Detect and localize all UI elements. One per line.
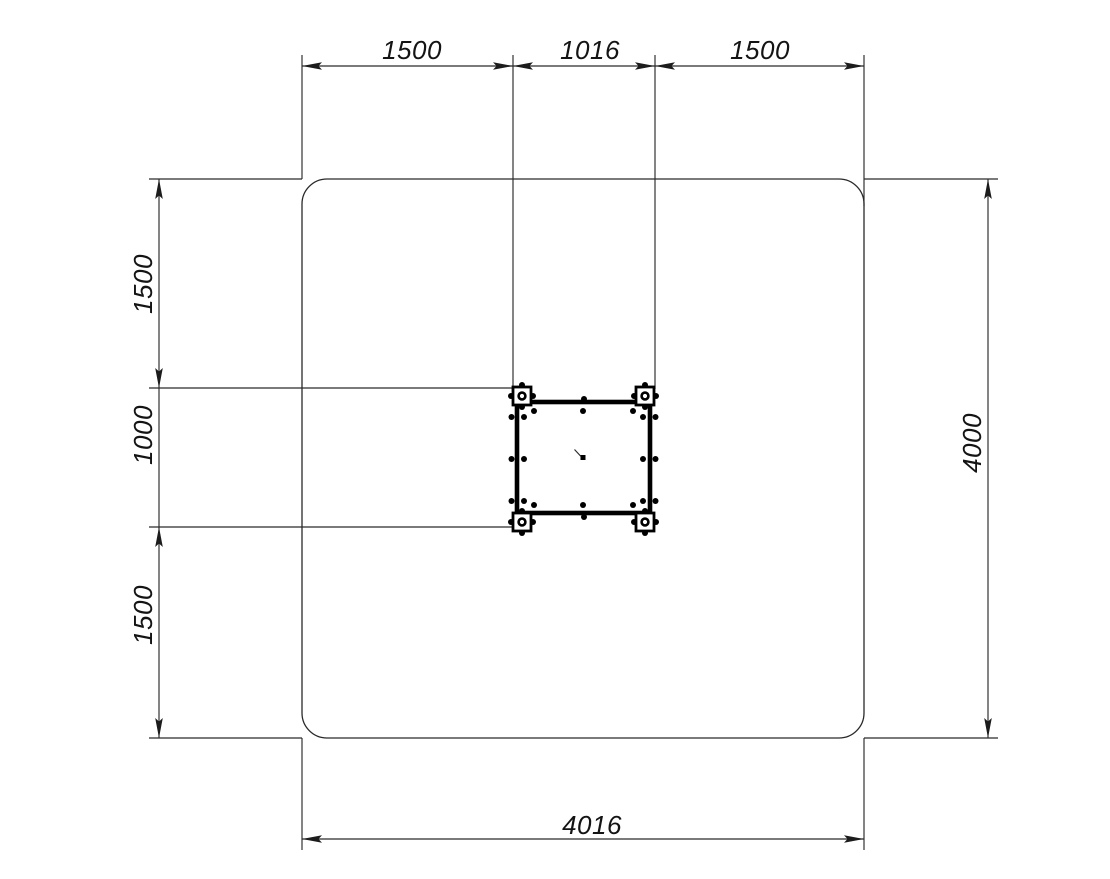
bolt-dot bbox=[531, 408, 537, 414]
bolt-dot bbox=[581, 396, 587, 402]
bolt-dot bbox=[509, 498, 515, 504]
bolt-dot bbox=[640, 456, 646, 462]
engineering-drawing: 1500 1016 1500 1500 1000 1500 4000 4016 bbox=[0, 0, 1110, 879]
bolt-dot bbox=[581, 514, 587, 520]
bolt-dot bbox=[509, 456, 515, 462]
drawing-canvas: 1500 1016 1500 1500 1000 1500 4000 4016 bbox=[0, 0, 1110, 879]
dim-label-left-middle: 1000 bbox=[128, 405, 158, 465]
bolt-dot bbox=[630, 408, 636, 414]
bolt-dot bbox=[521, 498, 527, 504]
bolt-dot bbox=[630, 502, 636, 508]
dim-label-right-overall: 4000 bbox=[957, 413, 987, 473]
bolt-dot bbox=[640, 414, 646, 420]
dim-label-top-right: 1500 bbox=[730, 35, 790, 65]
dim-label-top-middle: 1016 bbox=[560, 35, 620, 65]
dim-label-left-top: 1500 bbox=[128, 254, 158, 314]
bolt-dot bbox=[521, 456, 527, 462]
bolt-dot bbox=[531, 502, 537, 508]
dim-label-bottom-overall: 4016 bbox=[562, 810, 622, 840]
bolt-dot bbox=[509, 414, 515, 420]
bolt-dot bbox=[653, 456, 659, 462]
corner-post-pad bbox=[508, 382, 536, 410]
corner-post-pad bbox=[508, 508, 536, 536]
bolt-dot bbox=[653, 498, 659, 504]
corner-post-pad bbox=[631, 382, 659, 410]
dim-label-top-left: 1500 bbox=[382, 35, 442, 65]
bolt-dot bbox=[640, 498, 646, 504]
bolt-dot bbox=[653, 414, 659, 420]
dim-label-left-bottom: 1500 bbox=[128, 585, 158, 645]
bolt-dot bbox=[580, 502, 586, 508]
bolt-dot bbox=[521, 414, 527, 420]
corner-post-pad bbox=[631, 508, 659, 536]
bolt-dot bbox=[580, 408, 586, 414]
